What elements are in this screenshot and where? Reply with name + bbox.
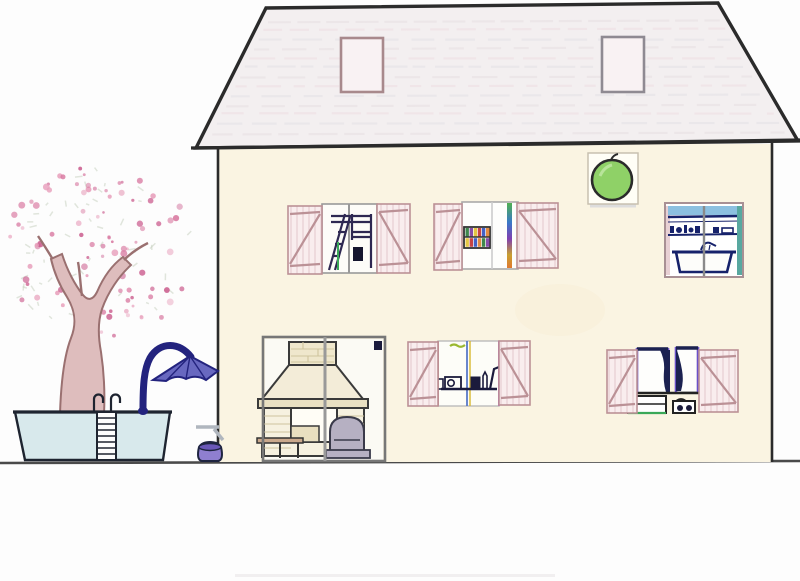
shutter-right	[377, 204, 410, 273]
ladder-rungs	[97, 418, 116, 454]
roof	[196, 3, 798, 148]
window-latch	[374, 341, 382, 350]
frame-strip-right	[737, 206, 742, 275]
bookshelf	[464, 227, 490, 248]
shutter-left	[288, 206, 322, 274]
wall-stain	[515, 284, 605, 336]
shutter-left	[408, 342, 438, 406]
pet-basket	[673, 399, 695, 413]
house-drawing	[0, 0, 800, 581]
window-bunkbed-room	[288, 204, 410, 274]
shutter-right	[699, 350, 738, 412]
cantilever-parasol	[138, 346, 218, 416]
skylight-left	[341, 38, 383, 92]
window-pane	[438, 341, 499, 406]
window-bookshelf-room	[434, 202, 558, 270]
pot-opening	[199, 444, 221, 451]
green-wall-lamp	[588, 153, 638, 206]
shutter-left	[607, 350, 637, 413]
patio-window-lounge	[257, 337, 385, 461]
shutter-left	[434, 204, 462, 270]
window-bathroom	[665, 203, 743, 277]
drawing-canvas	[0, 0, 800, 581]
window-kitchen	[408, 341, 530, 406]
skylight-right	[602, 37, 644, 92]
house	[191, 3, 800, 462]
shutter-right	[517, 203, 558, 268]
parasol-base	[138, 407, 148, 415]
pool-basin	[15, 412, 170, 460]
appliance	[471, 377, 480, 389]
scan-artifact-line	[235, 574, 555, 577]
rainbow-curtain-strip	[507, 203, 512, 268]
tree-trunk	[51, 254, 131, 414]
wall-picture	[353, 247, 363, 261]
shutter-right	[499, 341, 530, 405]
